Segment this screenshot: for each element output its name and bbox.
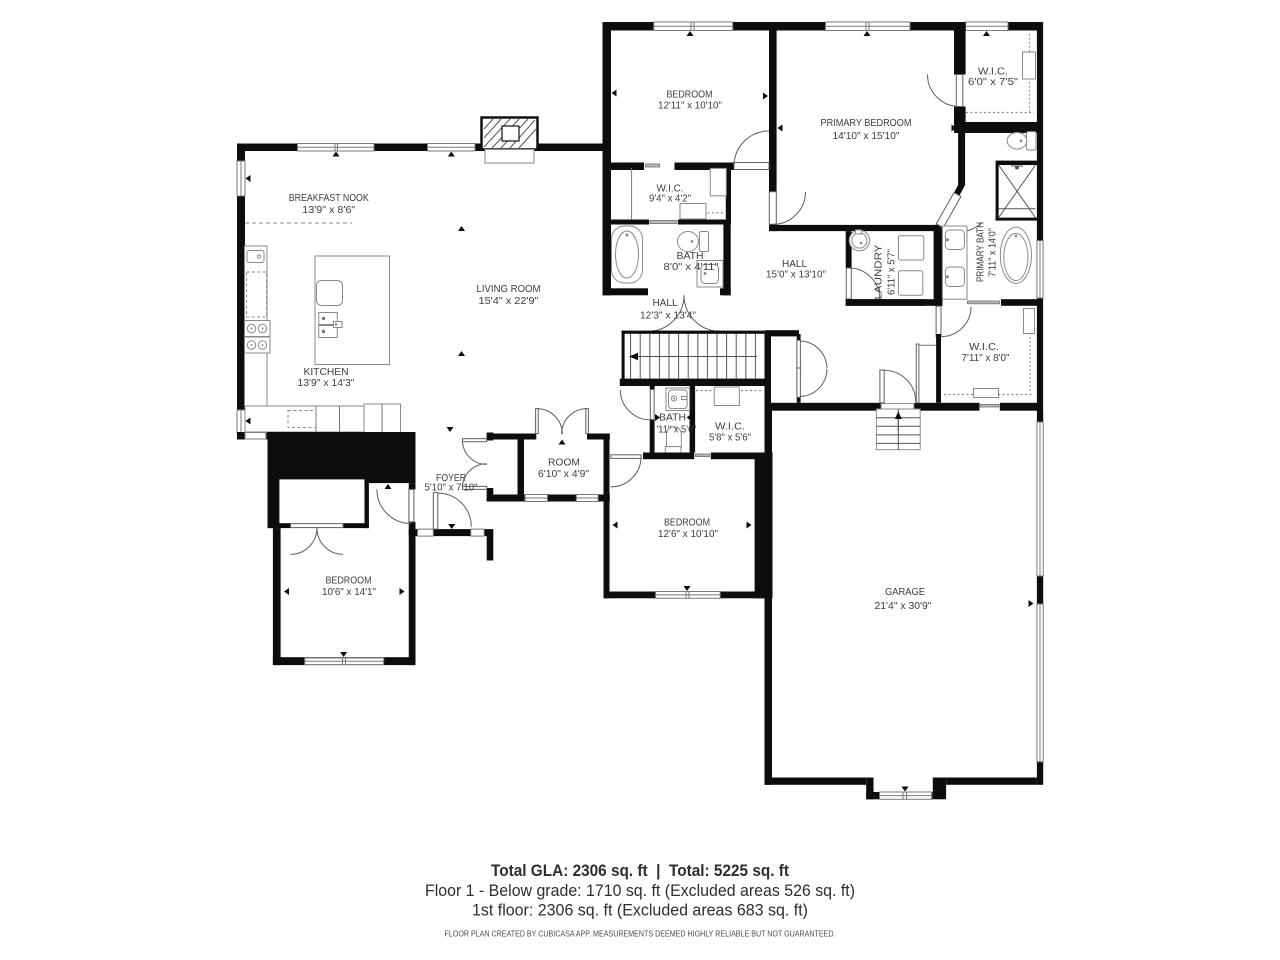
svg-text:6'0" x 7'5": 6'0" x 7'5": [968, 76, 1018, 88]
svg-text:PRIMARY BEDROOM: PRIMARY BEDROOM: [821, 117, 912, 129]
svg-text:13'9" x 8'6": 13'9" x 8'6": [302, 204, 355, 216]
svg-text:15'4" x 22'9": 15'4" x 22'9": [479, 295, 539, 307]
svg-text:HALL: HALL: [653, 297, 678, 309]
svg-text:21'4" x 30'9": 21'4" x 30'9": [875, 600, 932, 612]
svg-text:9'4" x 4'2": 9'4" x 4'2": [649, 193, 691, 205]
svg-text:5'10" x 7'10": 5'10" x 7'10": [425, 482, 478, 494]
svg-text:12'11" x 10'10": 12'11" x 10'10": [658, 100, 722, 112]
svg-text:PRIMARY BATH: PRIMARY BATH: [975, 222, 987, 282]
svg-text:12'6" x 10'10": 12'6" x 10'10": [658, 528, 718, 540]
svg-text:BEDROOM: BEDROOM: [326, 575, 372, 587]
svg-text:FLOOR PLAN CREATED BY CUBICASA: FLOOR PLAN CREATED BY CUBICASA APP. MEAS…: [445, 929, 836, 939]
svg-text:7'11" x 14'0": 7'11" x 14'0": [987, 228, 999, 277]
svg-text:LIVING ROOM: LIVING ROOM: [477, 283, 541, 295]
svg-text:BREAKFAST NOOK: BREAKFAST NOOK: [289, 192, 369, 204]
svg-text:12'3" x 13'4": 12'3" x 13'4": [640, 310, 696, 322]
svg-text:'11" x 5'6": '11" x 5'6": [657, 424, 697, 436]
svg-text:BEDROOM: BEDROOM: [664, 517, 710, 529]
svg-text:ROOM: ROOM: [548, 457, 580, 469]
svg-text:6'10" x 4'9": 6'10" x 4'9": [538, 468, 589, 480]
svg-text:Total GLA: 2306 sq. ft | Tot: Total GLA: 2306 sq. ft | Total: 5225 sq.…: [491, 861, 789, 880]
svg-text:6'11" x 5'7": 6'11" x 5'7": [886, 249, 898, 295]
svg-text:1st floor: 2306 sq. ft (Exclud: 1st floor: 2306 sq. ft (Excluded areas 6…: [472, 901, 808, 920]
svg-text:8'0" x 4'11": 8'0" x 4'11": [664, 261, 719, 273]
svg-text:GARAGE: GARAGE: [885, 586, 925, 598]
svg-text:15'0" x 13'10": 15'0" x 13'10": [766, 269, 826, 281]
svg-text:7'11" x 8'0": 7'11" x 8'0": [962, 352, 1010, 364]
svg-text:5'8" x 5'6": 5'8" x 5'6": [709, 432, 751, 444]
svg-text:LAUNDRY: LAUNDRY: [873, 245, 885, 300]
svg-text:Floor 1 - Below grade: 1710 sq: Floor 1 - Below grade: 1710 sq. ft (Excl…: [425, 881, 855, 900]
svg-text:10'6" x 14'1": 10'6" x 14'1": [322, 586, 376, 598]
svg-text:14'10" x 15'10": 14'10" x 15'10": [833, 130, 900, 142]
svg-text:BATH: BATH: [659, 412, 686, 424]
svg-text:13'9" x 14'3": 13'9" x 14'3": [298, 377, 355, 389]
